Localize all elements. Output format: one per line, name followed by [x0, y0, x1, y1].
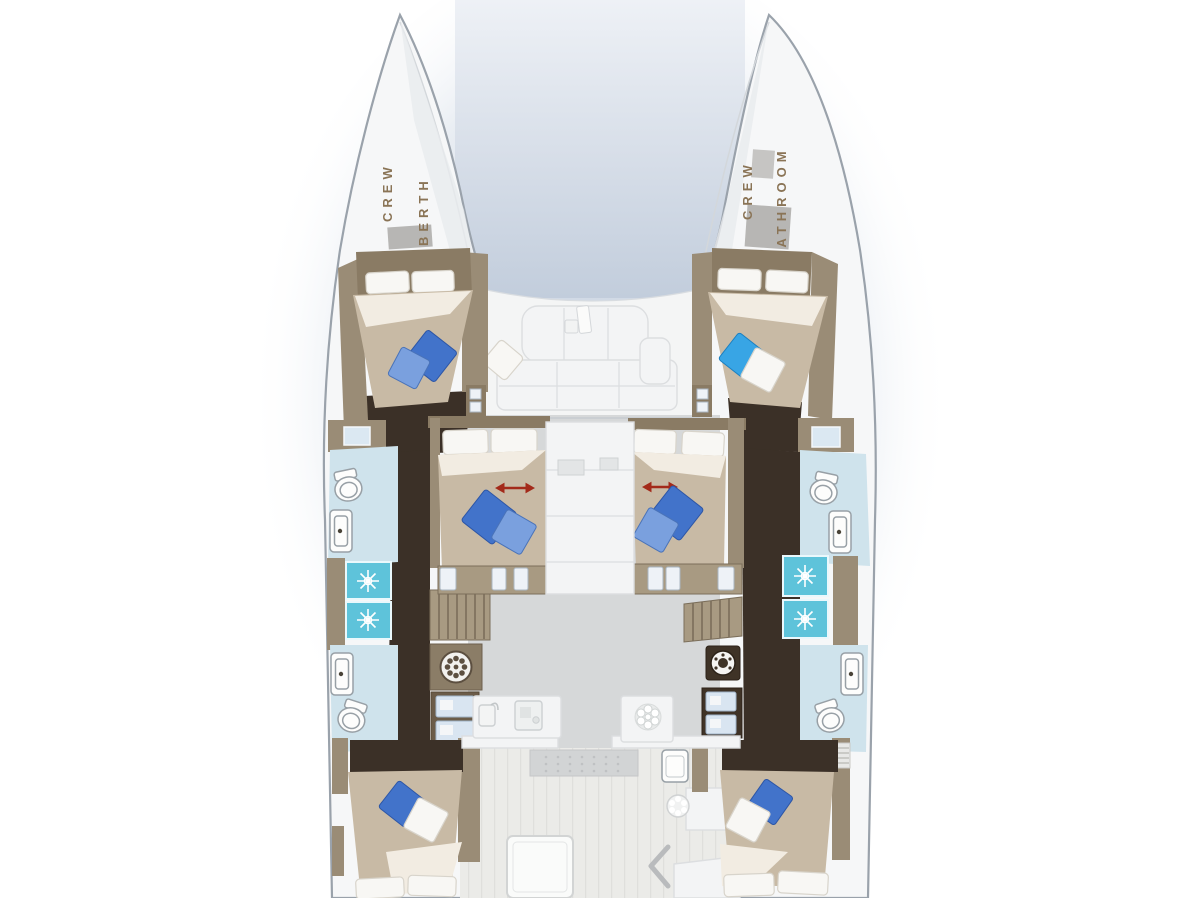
galley-faucet-icon — [479, 703, 498, 726]
forward-cockpit — [482, 290, 702, 420]
drawer-pull — [697, 389, 708, 399]
drawer-pull — [666, 567, 680, 590]
drawer-handle — [710, 719, 721, 728]
cockpit-white-table — [507, 836, 573, 898]
washing-machine-icon — [441, 652, 472, 683]
pillow — [491, 429, 537, 453]
cabin-wall — [332, 738, 348, 794]
pillow — [412, 270, 455, 292]
drawer-pull — [648, 567, 663, 590]
starboard-mid-cabin — [628, 418, 746, 594]
drawer-pull — [697, 402, 708, 412]
cabin-wall — [428, 416, 550, 428]
crew-berth-label-line1: CREW — [380, 162, 395, 222]
cabin-wall — [332, 826, 344, 876]
cabin-wall — [728, 418, 744, 568]
drawer-pull — [718, 567, 734, 590]
sink-icon — [829, 511, 851, 553]
pillow — [681, 431, 724, 457]
pillow — [724, 873, 775, 897]
pillow — [765, 270, 808, 293]
saloon-console — [546, 422, 634, 594]
drawer-handle — [440, 725, 453, 735]
cooktop-icon — [635, 704, 661, 730]
crew-bathroom-label-line2: BATHROOM — [774, 146, 789, 262]
shower-cabinet — [327, 558, 345, 650]
galley-counter-left — [473, 696, 561, 738]
drawer-pull — [440, 568, 456, 590]
shower-cabinet — [833, 556, 858, 656]
crew-bathroom-label-line1: CREW — [740, 160, 755, 220]
cabinet-window — [344, 427, 370, 445]
crew-berth-label-line2: BERTH — [416, 176, 431, 246]
cabin-wall — [430, 418, 440, 568]
yacht-floorplan: CREW BERTH CREW BATHROOM — [0, 0, 1200, 898]
cabin-floor — [350, 740, 463, 772]
galley-counter-right — [621, 696, 673, 742]
pillow — [718, 268, 762, 290]
floorplan-canvas: CREW BERTH CREW BATHROOM — [0, 0, 1200, 898]
pillow — [356, 877, 405, 898]
pillow — [443, 429, 489, 455]
cockpit-vent-icon — [667, 795, 689, 817]
pillow — [634, 429, 677, 454]
coffee-machine-icon — [515, 701, 542, 730]
starboard-aft-bathroom — [800, 645, 868, 752]
sink-icon — [841, 653, 863, 695]
sink-icon — [330, 510, 352, 552]
drawer-pull — [514, 568, 528, 590]
drawer-handle — [710, 696, 721, 705]
port-shower-stall — [327, 558, 391, 650]
port-aft-bathroom — [330, 645, 398, 752]
console-detail — [558, 460, 584, 475]
drawer-handle — [440, 700, 453, 710]
pillow — [366, 271, 410, 294]
pillow — [777, 871, 828, 896]
console-detail — [600, 458, 618, 470]
pillow — [408, 875, 457, 897]
drawer-pull — [492, 568, 506, 590]
drawer-pull — [470, 402, 481, 412]
washing-machine-icon — [711, 651, 735, 675]
sink-icon — [331, 653, 353, 695]
starboard-forward-cabin-wall-left — [692, 252, 712, 392]
drawer-pull — [470, 389, 481, 399]
cabinet-window — [812, 427, 840, 447]
